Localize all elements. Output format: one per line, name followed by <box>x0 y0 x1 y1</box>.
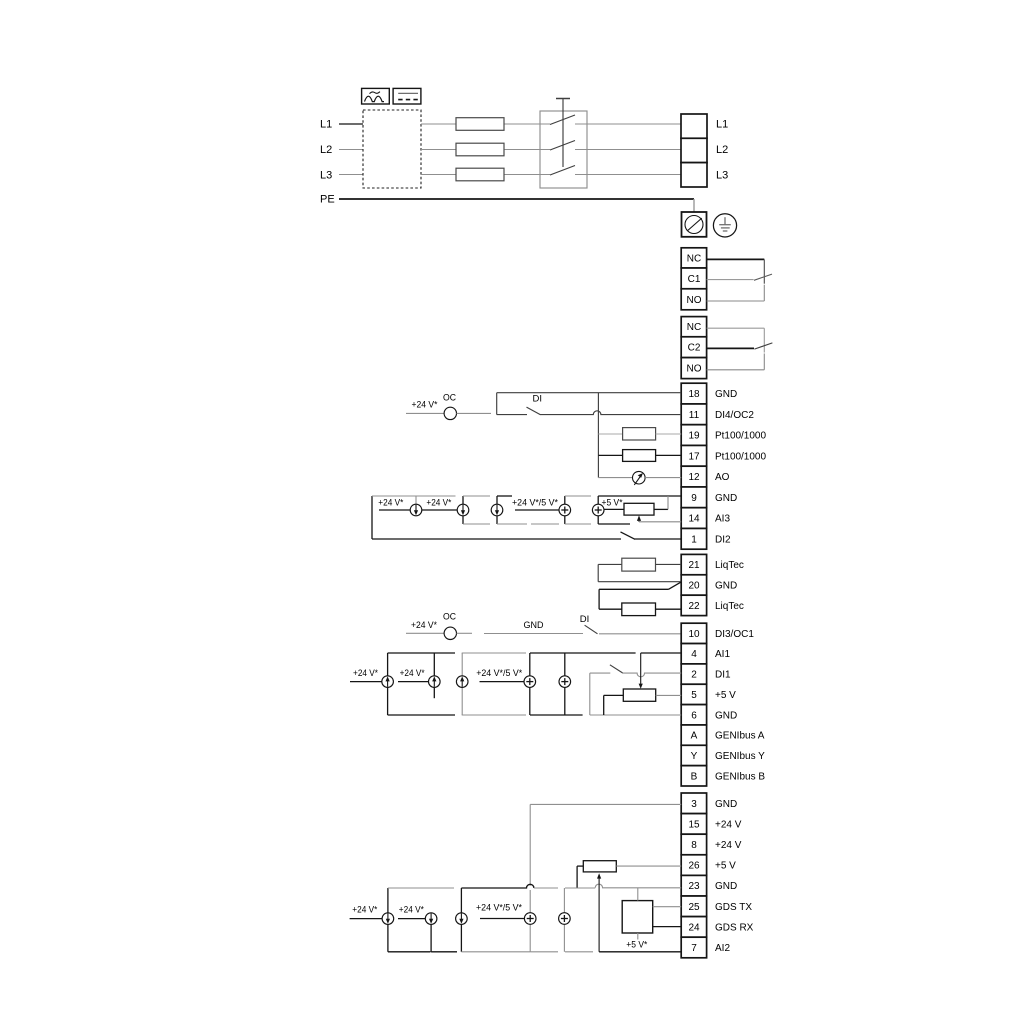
svg-text:Pt100/1000: Pt100/1000 <box>715 431 766 442</box>
svg-text:AI3: AI3 <box>715 514 730 525</box>
svg-text:C1: C1 <box>688 274 701 285</box>
svg-text:22: 22 <box>688 601 700 612</box>
svg-text:+24 V*: +24 V* <box>352 904 377 915</box>
svg-text:+24 V*: +24 V* <box>426 498 451 509</box>
svg-text:L1: L1 <box>320 119 332 131</box>
svg-text:+24 V*: +24 V* <box>378 498 403 509</box>
svg-text:23: 23 <box>688 881 700 892</box>
svg-text:11: 11 <box>689 410 700 421</box>
svg-text:12: 12 <box>688 472 700 483</box>
svg-text:DI3/OC1: DI3/OC1 <box>715 629 754 640</box>
svg-text:OC: OC <box>443 611 456 622</box>
svg-text:15: 15 <box>688 819 700 830</box>
svg-text:17: 17 <box>688 451 700 462</box>
svg-text:NO: NO <box>687 364 702 375</box>
svg-text:NO: NO <box>687 295 702 306</box>
svg-text:OC: OC <box>443 393 456 404</box>
svg-text:8: 8 <box>691 840 697 851</box>
svg-text:1: 1 <box>691 534 697 545</box>
svg-text:+5 V*: +5 V* <box>602 498 623 509</box>
svg-text:6: 6 <box>691 710 697 721</box>
svg-text:7: 7 <box>691 943 697 954</box>
svg-text:GDS RX: GDS RX <box>715 922 754 933</box>
svg-text:AO: AO <box>715 472 730 483</box>
svg-text:+5 V*: +5 V* <box>626 939 647 950</box>
svg-text:LiqTec: LiqTec <box>715 560 744 571</box>
svg-text:NC: NC <box>687 253 701 264</box>
svg-text:+5 V: +5 V <box>715 861 736 872</box>
svg-text:GND: GND <box>715 581 737 592</box>
svg-text:DI4/OC2: DI4/OC2 <box>715 410 754 421</box>
svg-text:GND: GND <box>715 799 737 810</box>
svg-text:GDS TX: GDS TX <box>715 902 752 913</box>
svg-text:+24 V*/5 V*: +24 V*/5 V* <box>476 668 522 679</box>
svg-text:+24 V*/5 V*: +24 V*/5 V* <box>476 902 522 913</box>
svg-text:LiqTec: LiqTec <box>715 601 744 612</box>
svg-text:2: 2 <box>691 670 697 681</box>
svg-text:Pt100/1000: Pt100/1000 <box>715 451 766 462</box>
svg-text:PE: PE <box>320 194 335 206</box>
svg-text:GND: GND <box>715 389 737 400</box>
svg-text:GENIbus Y: GENIbus Y <box>715 751 765 762</box>
svg-text:10: 10 <box>688 629 700 640</box>
svg-text:20: 20 <box>688 581 700 592</box>
svg-text:NC: NC <box>687 322 701 333</box>
svg-text:AI2: AI2 <box>715 943 730 954</box>
svg-text:A: A <box>691 731 698 742</box>
svg-text:B: B <box>691 771 698 782</box>
svg-text:3: 3 <box>691 799 697 810</box>
svg-text:DI2: DI2 <box>715 534 731 545</box>
svg-text:+24 V*: +24 V* <box>353 668 378 679</box>
svg-text:4: 4 <box>691 649 697 660</box>
svg-text:+24 V*: +24 V* <box>400 668 425 679</box>
svg-text:25: 25 <box>688 902 700 913</box>
svg-text:+24 V*/5 V*: +24 V*/5 V* <box>512 498 558 509</box>
svg-text:L3: L3 <box>716 170 728 182</box>
svg-text:DI: DI <box>580 614 590 625</box>
svg-text:5: 5 <box>691 690 697 701</box>
svg-text:DI: DI <box>533 393 543 404</box>
svg-text:C2: C2 <box>688 343 701 354</box>
svg-text:L2: L2 <box>716 144 728 156</box>
svg-text:GENIbus B: GENIbus B <box>715 771 765 782</box>
svg-text:18: 18 <box>688 389 700 400</box>
svg-text:+24 V: +24 V <box>715 840 742 851</box>
svg-text:GND: GND <box>715 710 737 721</box>
svg-text:GND: GND <box>524 620 544 631</box>
svg-text:GENIbus A: GENIbus A <box>715 731 765 742</box>
svg-text:21: 21 <box>688 560 700 571</box>
svg-text:GND: GND <box>715 881 737 892</box>
svg-text:+24 V*: +24 V* <box>399 904 424 915</box>
svg-text:L1: L1 <box>716 119 728 131</box>
svg-text:+24 V: +24 V <box>715 819 742 830</box>
svg-text:AI1: AI1 <box>715 649 730 660</box>
svg-text:L2: L2 <box>320 144 332 156</box>
svg-text:+24 V*: +24 V* <box>412 400 438 411</box>
svg-text:19: 19 <box>688 431 700 442</box>
svg-text:26: 26 <box>688 861 700 872</box>
svg-text:Y: Y <box>691 751 698 762</box>
svg-text:+24 V*: +24 V* <box>411 620 437 631</box>
svg-text:9: 9 <box>691 493 697 504</box>
svg-text:+5 V: +5 V <box>715 690 736 701</box>
svg-text:24: 24 <box>688 922 700 933</box>
svg-text:L3: L3 <box>320 170 332 182</box>
svg-text:DI1: DI1 <box>715 670 731 681</box>
svg-text:14: 14 <box>688 514 700 525</box>
svg-text:GND: GND <box>715 493 737 504</box>
